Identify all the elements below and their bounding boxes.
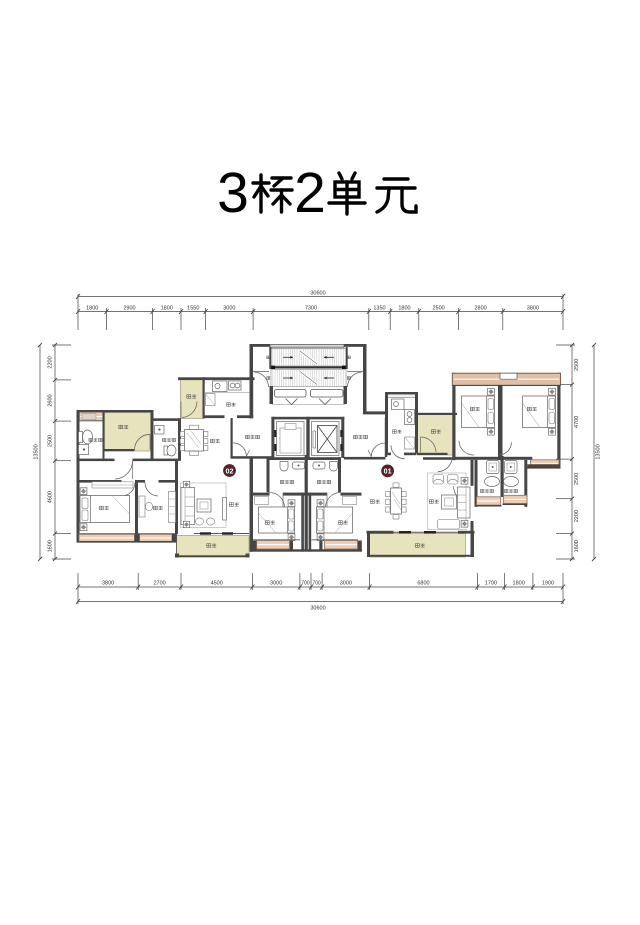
svg-text:1700: 1700 (485, 581, 497, 587)
svg-text:2700: 2700 (153, 581, 165, 587)
svg-text:1600: 1600 (574, 540, 580, 552)
svg-text:1350: 1350 (373, 306, 385, 312)
svg-text:1800: 1800 (398, 306, 410, 312)
svg-text:2800: 2800 (474, 306, 486, 312)
svg-text:3800: 3800 (102, 581, 114, 587)
svg-text:2500: 2500 (574, 473, 580, 485)
svg-text:4600: 4600 (48, 491, 54, 503)
svg-text:2500: 2500 (48, 435, 54, 447)
svg-text:6800: 6800 (417, 581, 429, 587)
svg-text:2500: 2500 (574, 359, 580, 371)
svg-text:3: 3 (217, 161, 249, 225)
svg-text:7300: 7300 (305, 306, 317, 312)
svg-text:02: 02 (226, 466, 234, 475)
svg-text:1800: 1800 (513, 581, 525, 587)
svg-text:30600: 30600 (310, 291, 325, 297)
svg-text:1800: 1800 (161, 306, 173, 312)
svg-text:01: 01 (384, 467, 392, 476)
svg-text:700: 700 (312, 581, 321, 587)
svg-text:2200: 2200 (574, 510, 580, 522)
svg-text:1800: 1800 (86, 306, 98, 312)
svg-text:700: 700 (301, 581, 310, 587)
svg-text:3000: 3000 (340, 581, 352, 587)
svg-text:4700: 4700 (574, 416, 580, 428)
svg-text:3000: 3000 (270, 581, 282, 587)
svg-text:4500: 4500 (211, 581, 223, 587)
svg-text:2500: 2500 (432, 306, 444, 312)
svg-text:1600: 1600 (48, 540, 54, 552)
svg-text:3000: 3000 (223, 306, 235, 312)
svg-text:1900: 1900 (542, 581, 554, 587)
svg-text:13500: 13500 (596, 444, 602, 459)
svg-text:30600: 30600 (310, 606, 325, 612)
svg-text:13500: 13500 (34, 444, 40, 459)
svg-text:2600: 2600 (48, 394, 54, 406)
svg-text:3800: 3800 (527, 306, 539, 312)
svg-text:2900: 2900 (123, 306, 135, 312)
svg-text:1550: 1550 (187, 306, 199, 312)
svg-text:2200: 2200 (48, 356, 54, 368)
svg-text:2: 2 (294, 161, 326, 225)
